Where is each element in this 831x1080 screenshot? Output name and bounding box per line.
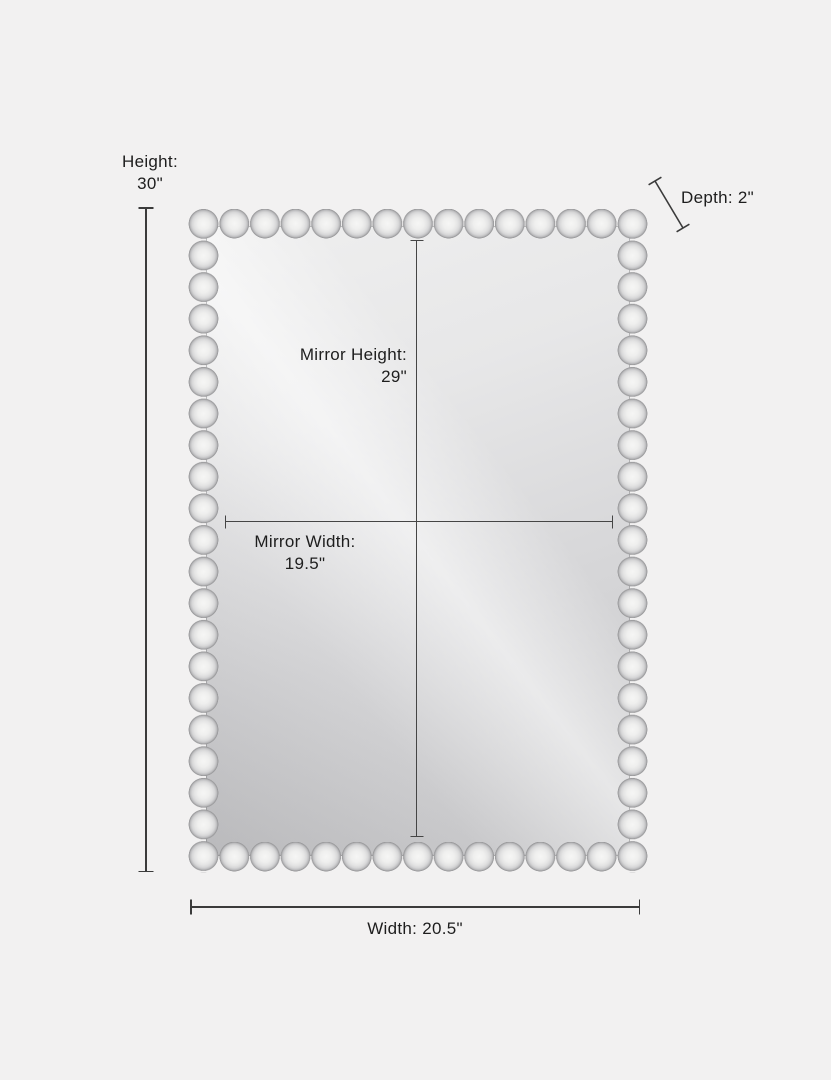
depth-dimension-label: Depth: 2" bbox=[681, 187, 754, 209]
mirror-width-dimension-label: Mirror Width: 19.5" bbox=[230, 531, 380, 575]
height-label-value: 30" bbox=[110, 173, 190, 195]
mirror-height-dimension-line bbox=[416, 240, 417, 837]
mirror-width-label-title: Mirror Width: bbox=[230, 531, 380, 553]
width-dimension-label: Width: 20.5" bbox=[315, 918, 515, 940]
height-label-title: Height: bbox=[110, 151, 190, 173]
bead-frame-top bbox=[219, 209, 617, 240]
height-dimension-label: Height: 30" bbox=[110, 151, 190, 195]
width-dimension-line bbox=[190, 906, 640, 908]
mirror-width-label-value: 19.5" bbox=[230, 553, 380, 575]
mirror-width-dimension-line bbox=[225, 521, 613, 522]
dimension-diagram: Height: 30" Depth: 2" Mirror Height: 29"… bbox=[0, 0, 831, 1080]
bead-frame-left bbox=[188, 209, 219, 873]
mirror-height-label-title: Mirror Height: bbox=[257, 344, 407, 366]
bead-frame-bottom bbox=[219, 842, 617, 873]
bead-frame-right bbox=[617, 209, 648, 873]
mirror-height-dimension-label: Mirror Height: 29" bbox=[257, 344, 407, 388]
height-dimension-line bbox=[145, 207, 147, 872]
mirror-height-label-value: 29" bbox=[257, 366, 407, 388]
